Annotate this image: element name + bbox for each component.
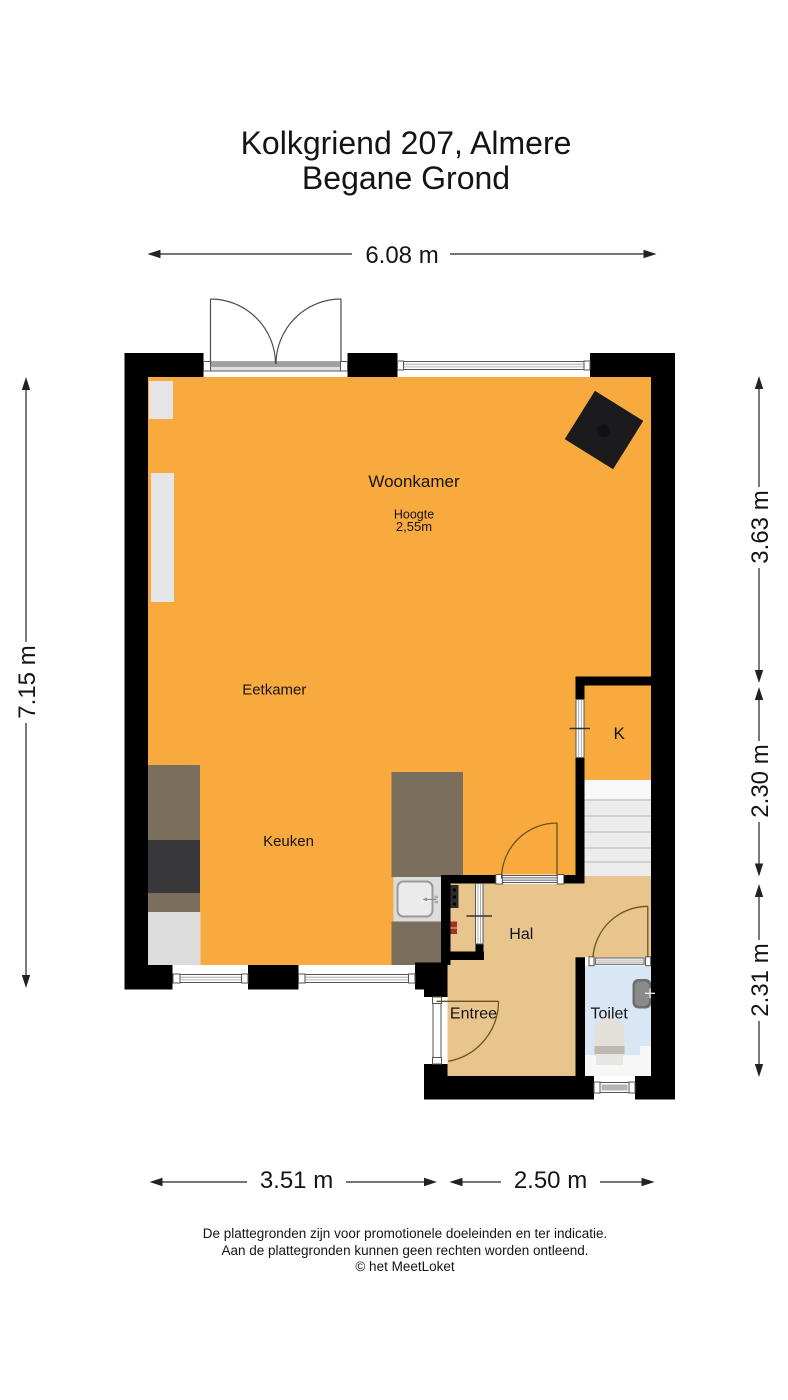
- svg-text:2.30 m: 2.30 m: [747, 744, 774, 817]
- svg-text:Keuken: Keuken: [263, 833, 314, 850]
- svg-text:Aan de plattegronden kunnen ge: Aan de plattegronden kunnen geen rechten…: [221, 1243, 588, 1258]
- svg-text:6.08 m: 6.08 m: [365, 242, 438, 269]
- svg-text:Kolkgriend 207, Almere: Kolkgriend 207, Almere: [241, 125, 572, 161]
- svg-text:Eetkamer: Eetkamer: [242, 682, 306, 699]
- svg-text:7.15 m: 7.15 m: [14, 645, 41, 718]
- svg-text:3.63 m: 3.63 m: [747, 490, 774, 563]
- svg-text:Woonkamer: Woonkamer: [368, 472, 460, 491]
- svg-text:De plattegronden zijn voor pro: De plattegronden zijn voor promotionele …: [203, 1226, 608, 1241]
- svg-text:K: K: [614, 724, 626, 743]
- svg-text:2.50 m: 2.50 m: [514, 1167, 587, 1194]
- svg-text:2,55m: 2,55m: [396, 519, 432, 534]
- svg-text:Begane Grond: Begane Grond: [302, 160, 510, 196]
- svg-text:2.31 m: 2.31 m: [747, 943, 774, 1016]
- svg-text:Hal: Hal: [509, 926, 533, 943]
- svg-text:© het MeetLoket: © het MeetLoket: [355, 1259, 455, 1274]
- svg-text:3.51 m: 3.51 m: [260, 1167, 333, 1194]
- svg-text:Toilet: Toilet: [591, 1006, 629, 1023]
- svg-text:Entree: Entree: [450, 1006, 497, 1023]
